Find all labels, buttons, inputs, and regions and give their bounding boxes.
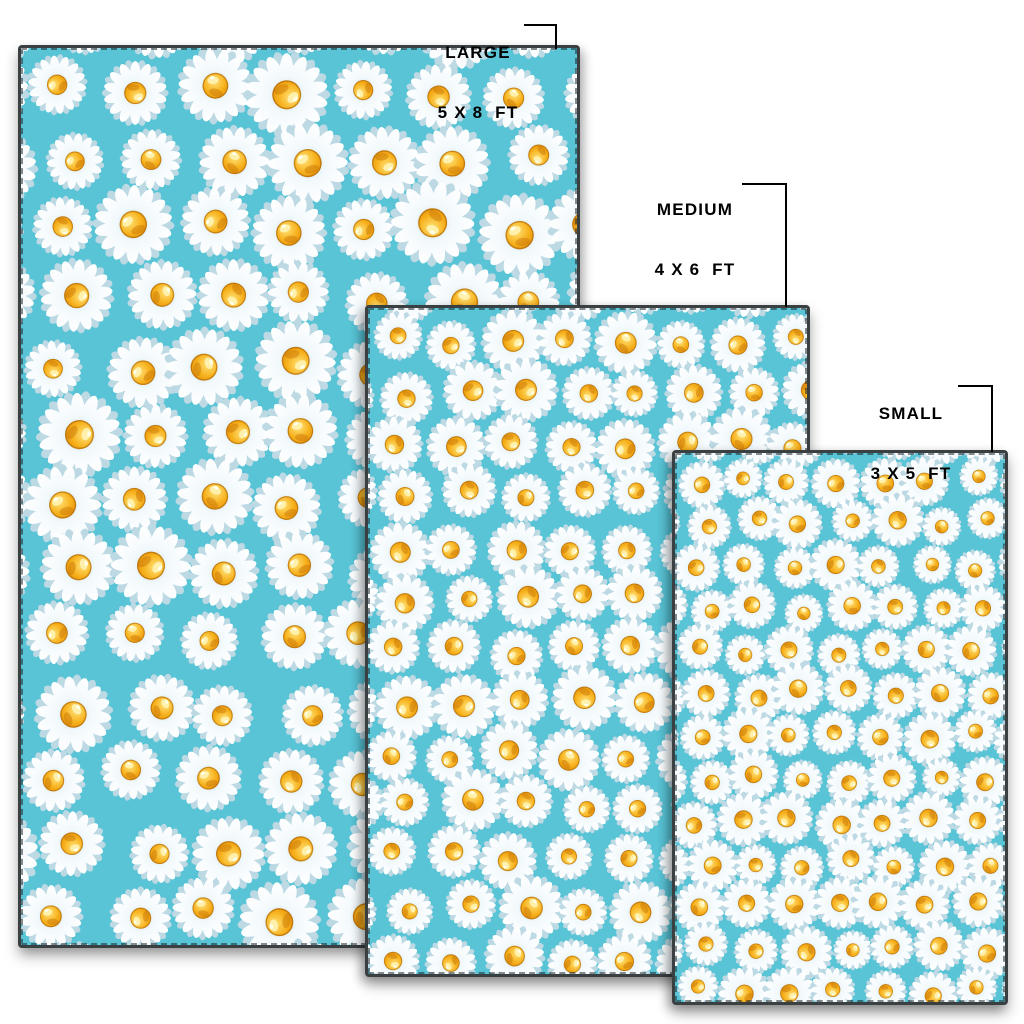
size-dimensions-medium: 4 X 6 FT: [615, 260, 775, 280]
leader-line-small-vertical: [991, 385, 993, 452]
leader-line-large-horizontal: [524, 24, 557, 26]
leader-line-medium-vertical: [785, 183, 787, 307]
size-dimensions-small: 3 X 5 FT: [831, 464, 991, 484]
leader-line-small-horizontal: [958, 385, 993, 387]
daisy-pattern-small: [675, 453, 1005, 1002]
size-name-small: SMALL: [831, 404, 991, 424]
leader-line-medium-horizontal: [742, 183, 787, 185]
size-label-small: SMALL 3 X 5 FT: [831, 364, 991, 524]
size-name-large: LARGE: [398, 43, 558, 63]
rug-size-chart: LARGE 5 X 8 FT MEDIUM 4 X 6 FT SMALL 3 X…: [0, 0, 1024, 1024]
rug-small: [672, 450, 1008, 1005]
leader-line-large-vertical: [555, 24, 557, 49]
size-dimensions-large: 5 X 8 FT: [398, 103, 558, 123]
size-label-large: LARGE 5 X 8 FT: [398, 3, 558, 163]
size-name-medium: MEDIUM: [615, 200, 775, 220]
